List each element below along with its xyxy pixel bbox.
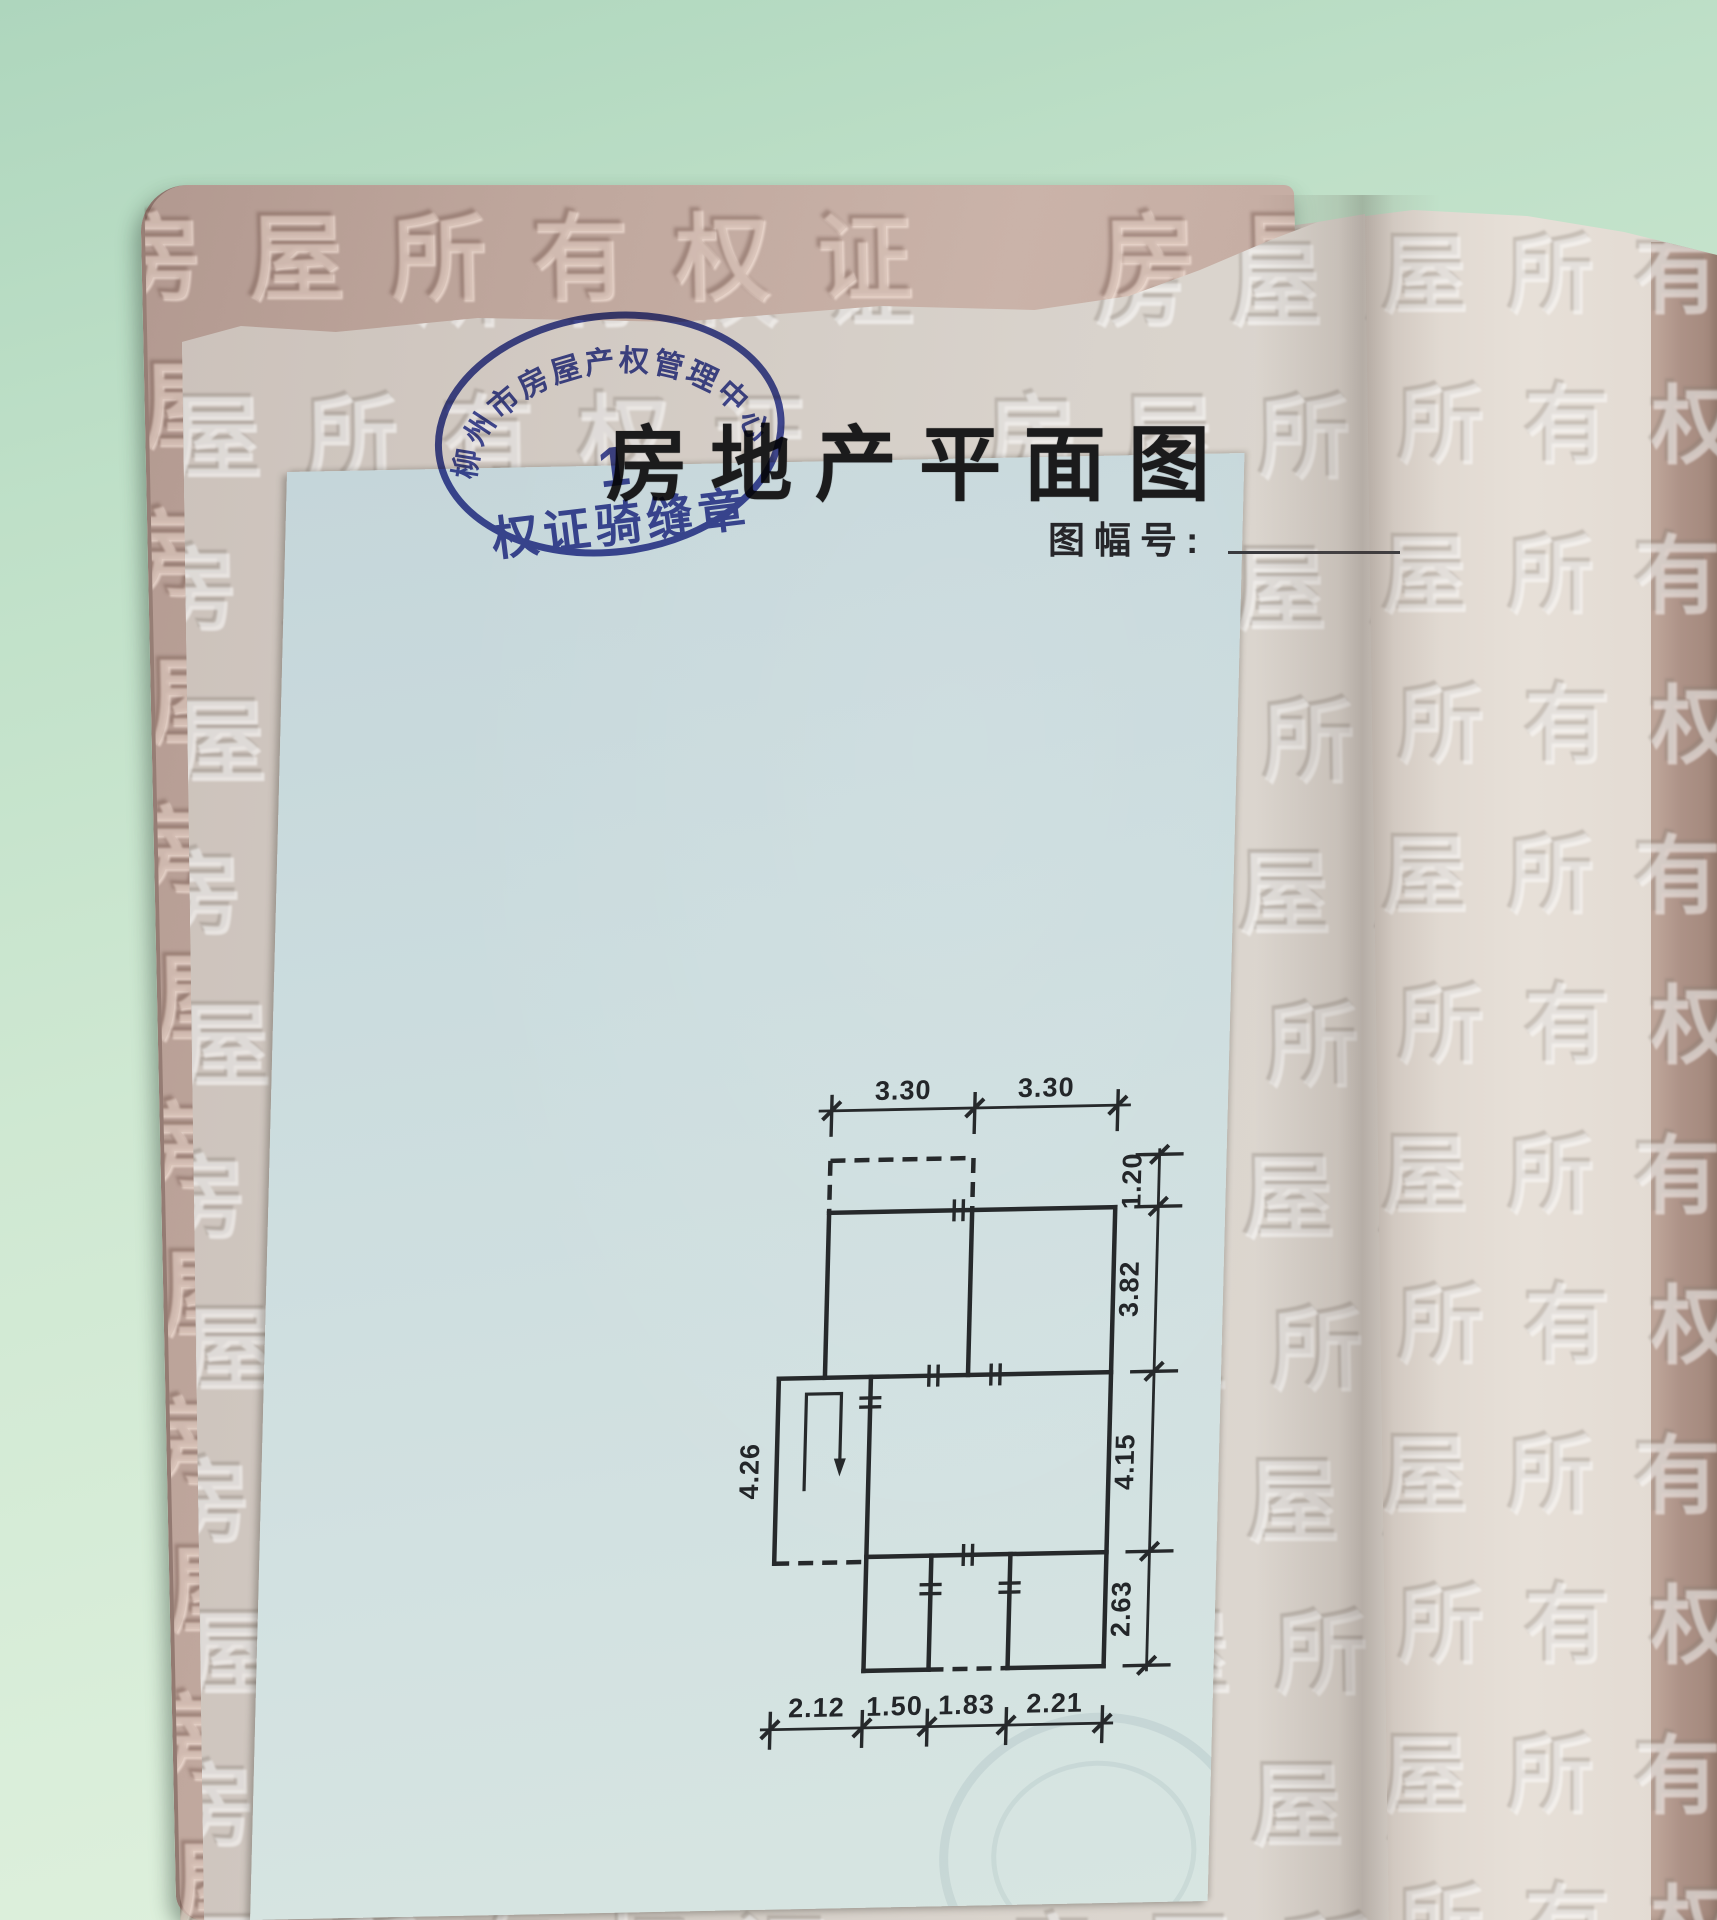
dim-label: 2.21: [1026, 1688, 1083, 1719]
stairwell-dashed-bottom: [774, 1562, 866, 1564]
bottom-wall-left: [863, 1670, 928, 1671]
lower-interior-wall-1: [928, 1556, 931, 1670]
dimension-left: 4.26: [734, 1443, 765, 1500]
dim-label: 4.26: [734, 1443, 765, 1500]
stairwell-right-wall: [863, 1377, 870, 1671]
lower-interior-wall-2: [1008, 1554, 1011, 1668]
middle-wall: [779, 1372, 1111, 1379]
dim-label: 1.83: [938, 1689, 995, 1720]
dim-label: 4.15: [1109, 1433, 1140, 1490]
dim-label: 1.20: [1116, 1152, 1147, 1209]
stairwell-left-wall: [774, 1379, 779, 1564]
dim-label: 3.82: [1113, 1260, 1144, 1317]
upper-interior-wall: [968, 1210, 972, 1375]
dim-label: 2.12: [788, 1692, 845, 1723]
stair-arrow: [804, 1393, 847, 1491]
ghost-stamp-bleedthrough: [940, 1714, 1244, 1920]
seam-stamp: 柳州市房屋产权管理中心 1 权证骑缝章: [405, 276, 816, 596]
lower-band-top-wall: [866, 1552, 1106, 1557]
balcony-dashed-outline: [829, 1158, 973, 1213]
plan-walls: [771, 1155, 1116, 1673]
dim-label: 3.30: [875, 1075, 932, 1106]
floor-plan-svg: 3.30 3.30 1.20 3.82 4.15 2.63 4.26 2.12 …: [250, 453, 1244, 1920]
bottom-wall-right: [1008, 1666, 1104, 1668]
right-cover-edge-strip: [1651, 242, 1717, 1920]
title-char: 平: [919, 398, 1001, 517]
window-symbols: [854, 1198, 1030, 1595]
dimension-top: 3.30 3.30: [818, 1071, 1132, 1137]
dim-label: 3.30: [1018, 1072, 1075, 1103]
dim-label: 1.50: [866, 1691, 923, 1722]
sheet-number-blank-line: [1228, 551, 1400, 554]
title-char: 产: [815, 398, 897, 517]
stamp-center-number: 1: [594, 433, 633, 499]
upper-left-wall: [825, 1213, 829, 1378]
photo-of-property-certificate: { "cover": { "emboss_text": "房屋所有权证", "c…: [0, 0, 1717, 1920]
floor-plan-sheet: 3.30 3.30 1.20 3.82 4.15 2.63 4.26 2.12 …: [250, 453, 1244, 1920]
bottom-wall-dashed-opening: [928, 1668, 1007, 1670]
sheet-number-label: 图幅号:: [1048, 510, 1207, 564]
dim-label: 2.63: [1105, 1580, 1136, 1637]
title-char: 面: [1024, 398, 1106, 517]
title-char: 图: [1128, 398, 1210, 517]
